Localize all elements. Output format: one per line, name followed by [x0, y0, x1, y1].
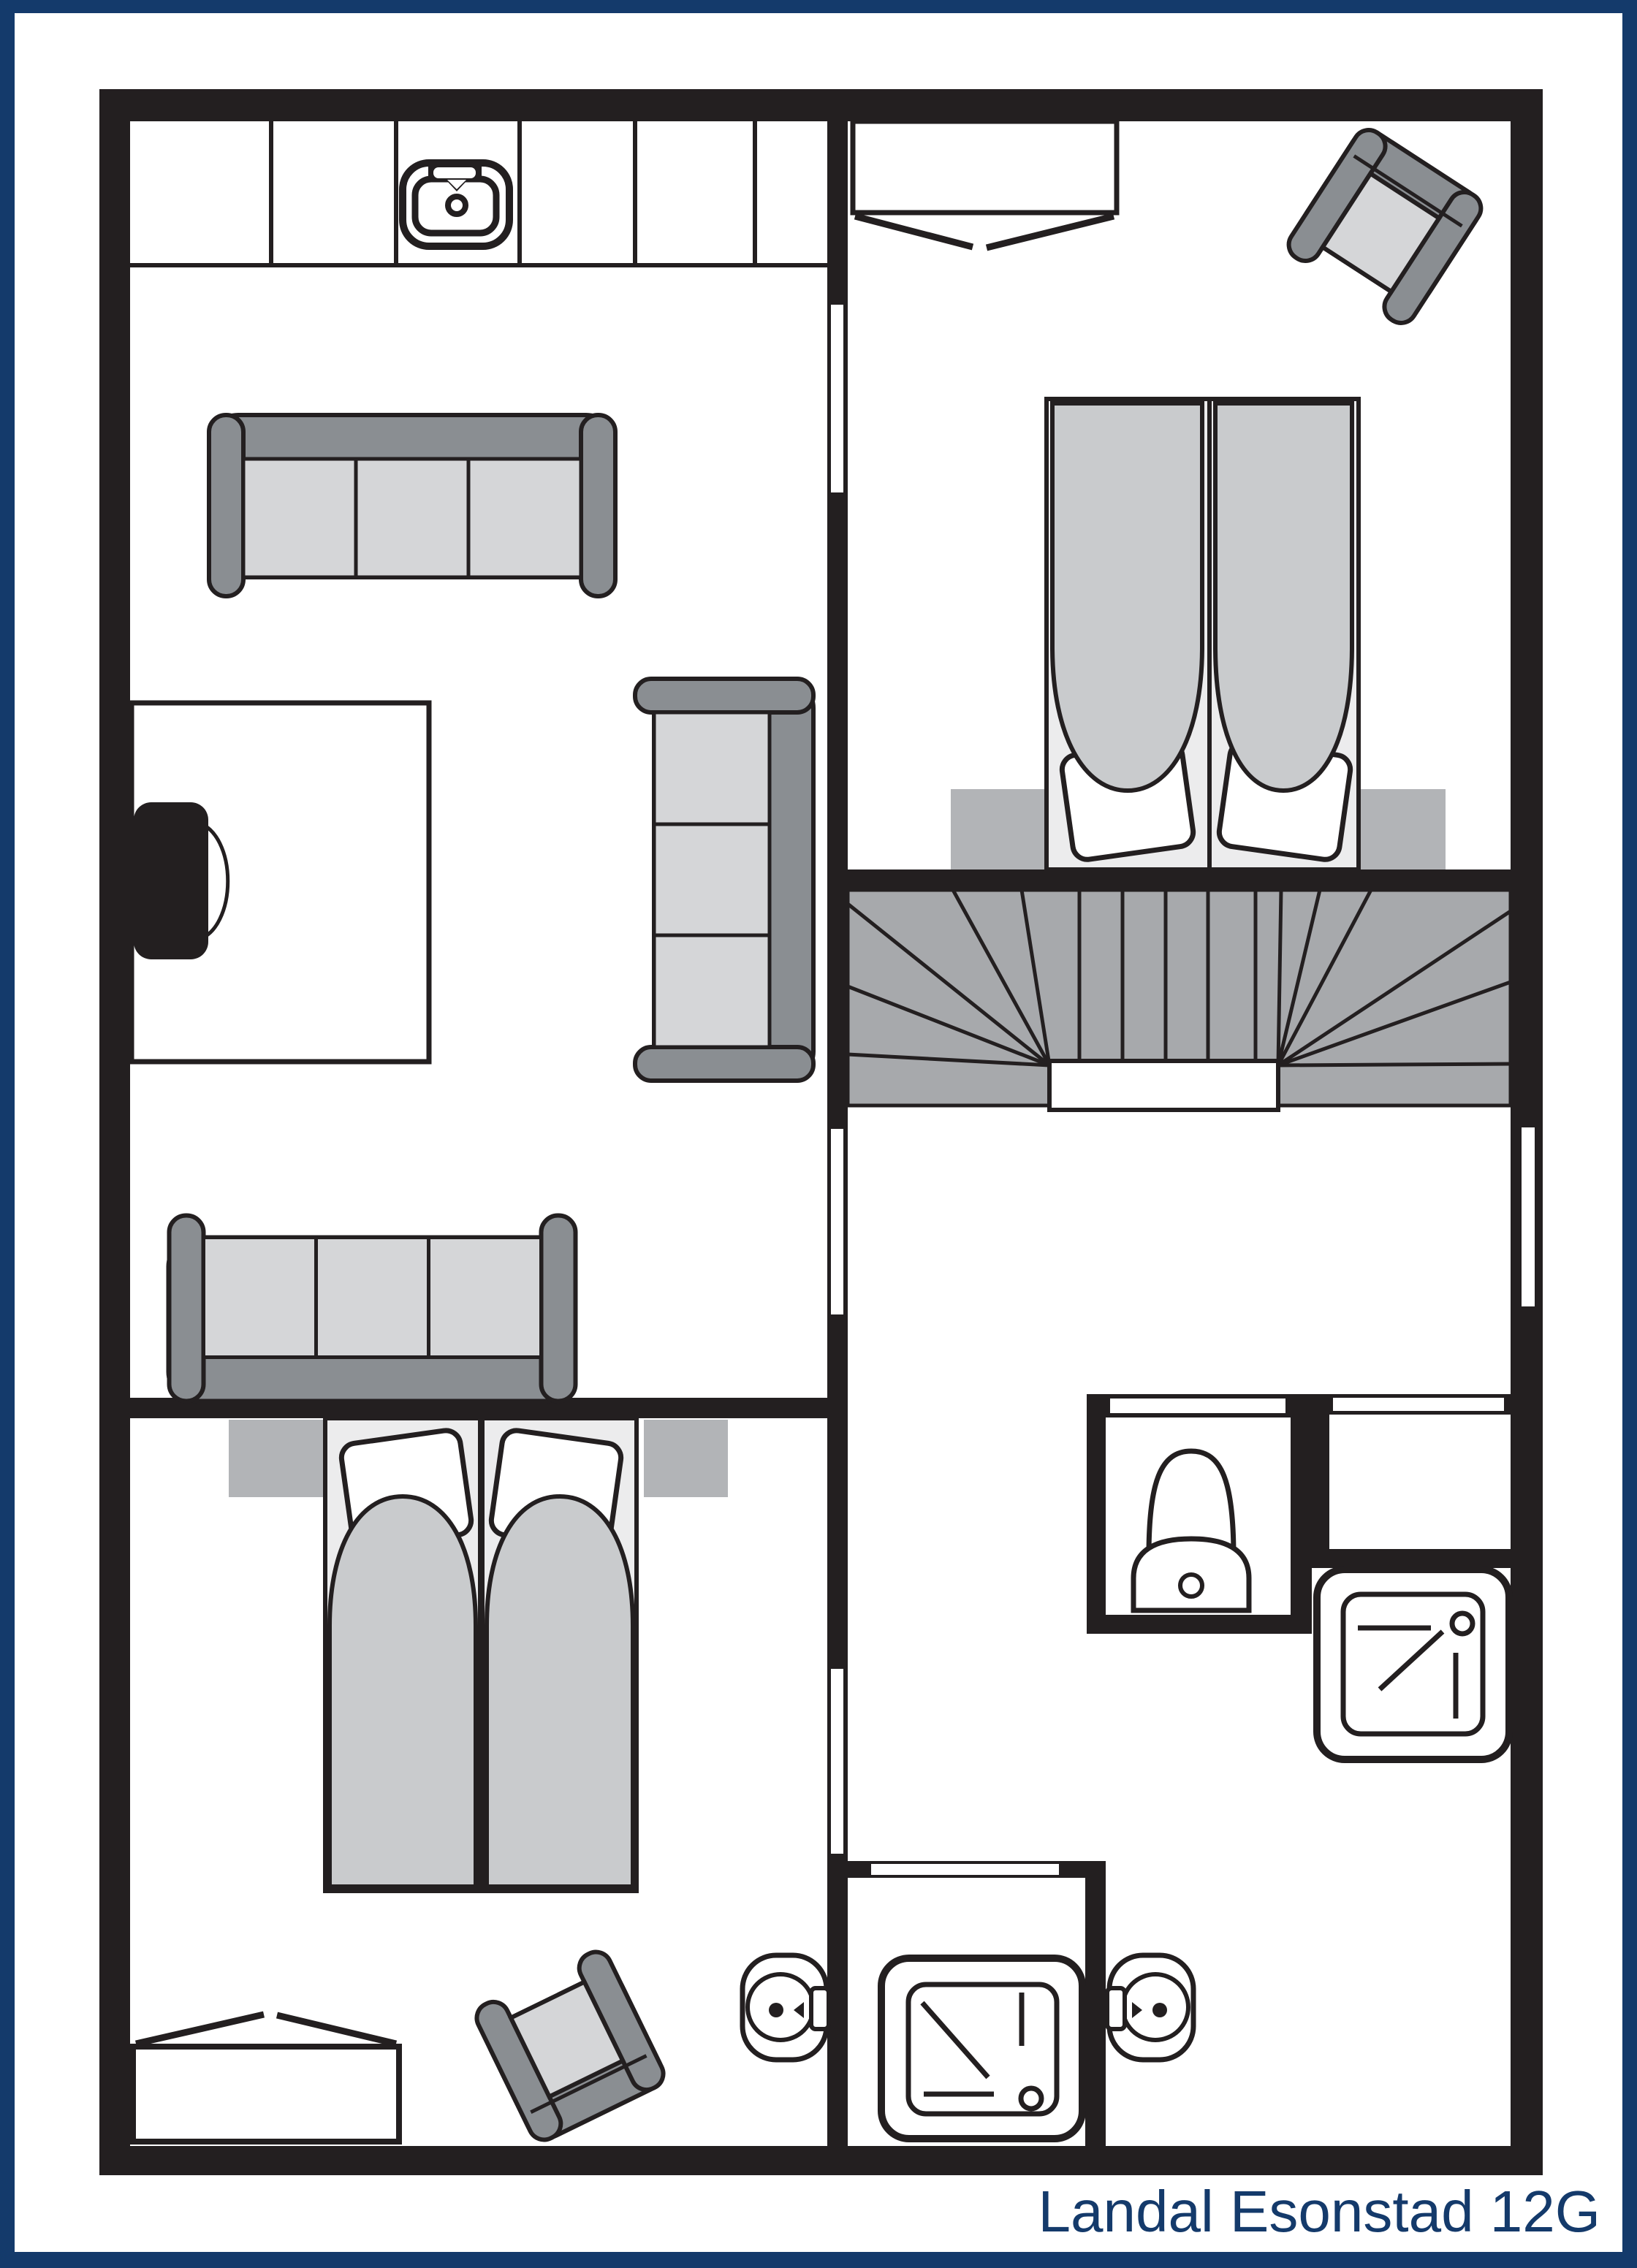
svg-text:Landal Esonstad 12G: Landal Esonstad 12G: [1038, 2179, 1600, 2244]
